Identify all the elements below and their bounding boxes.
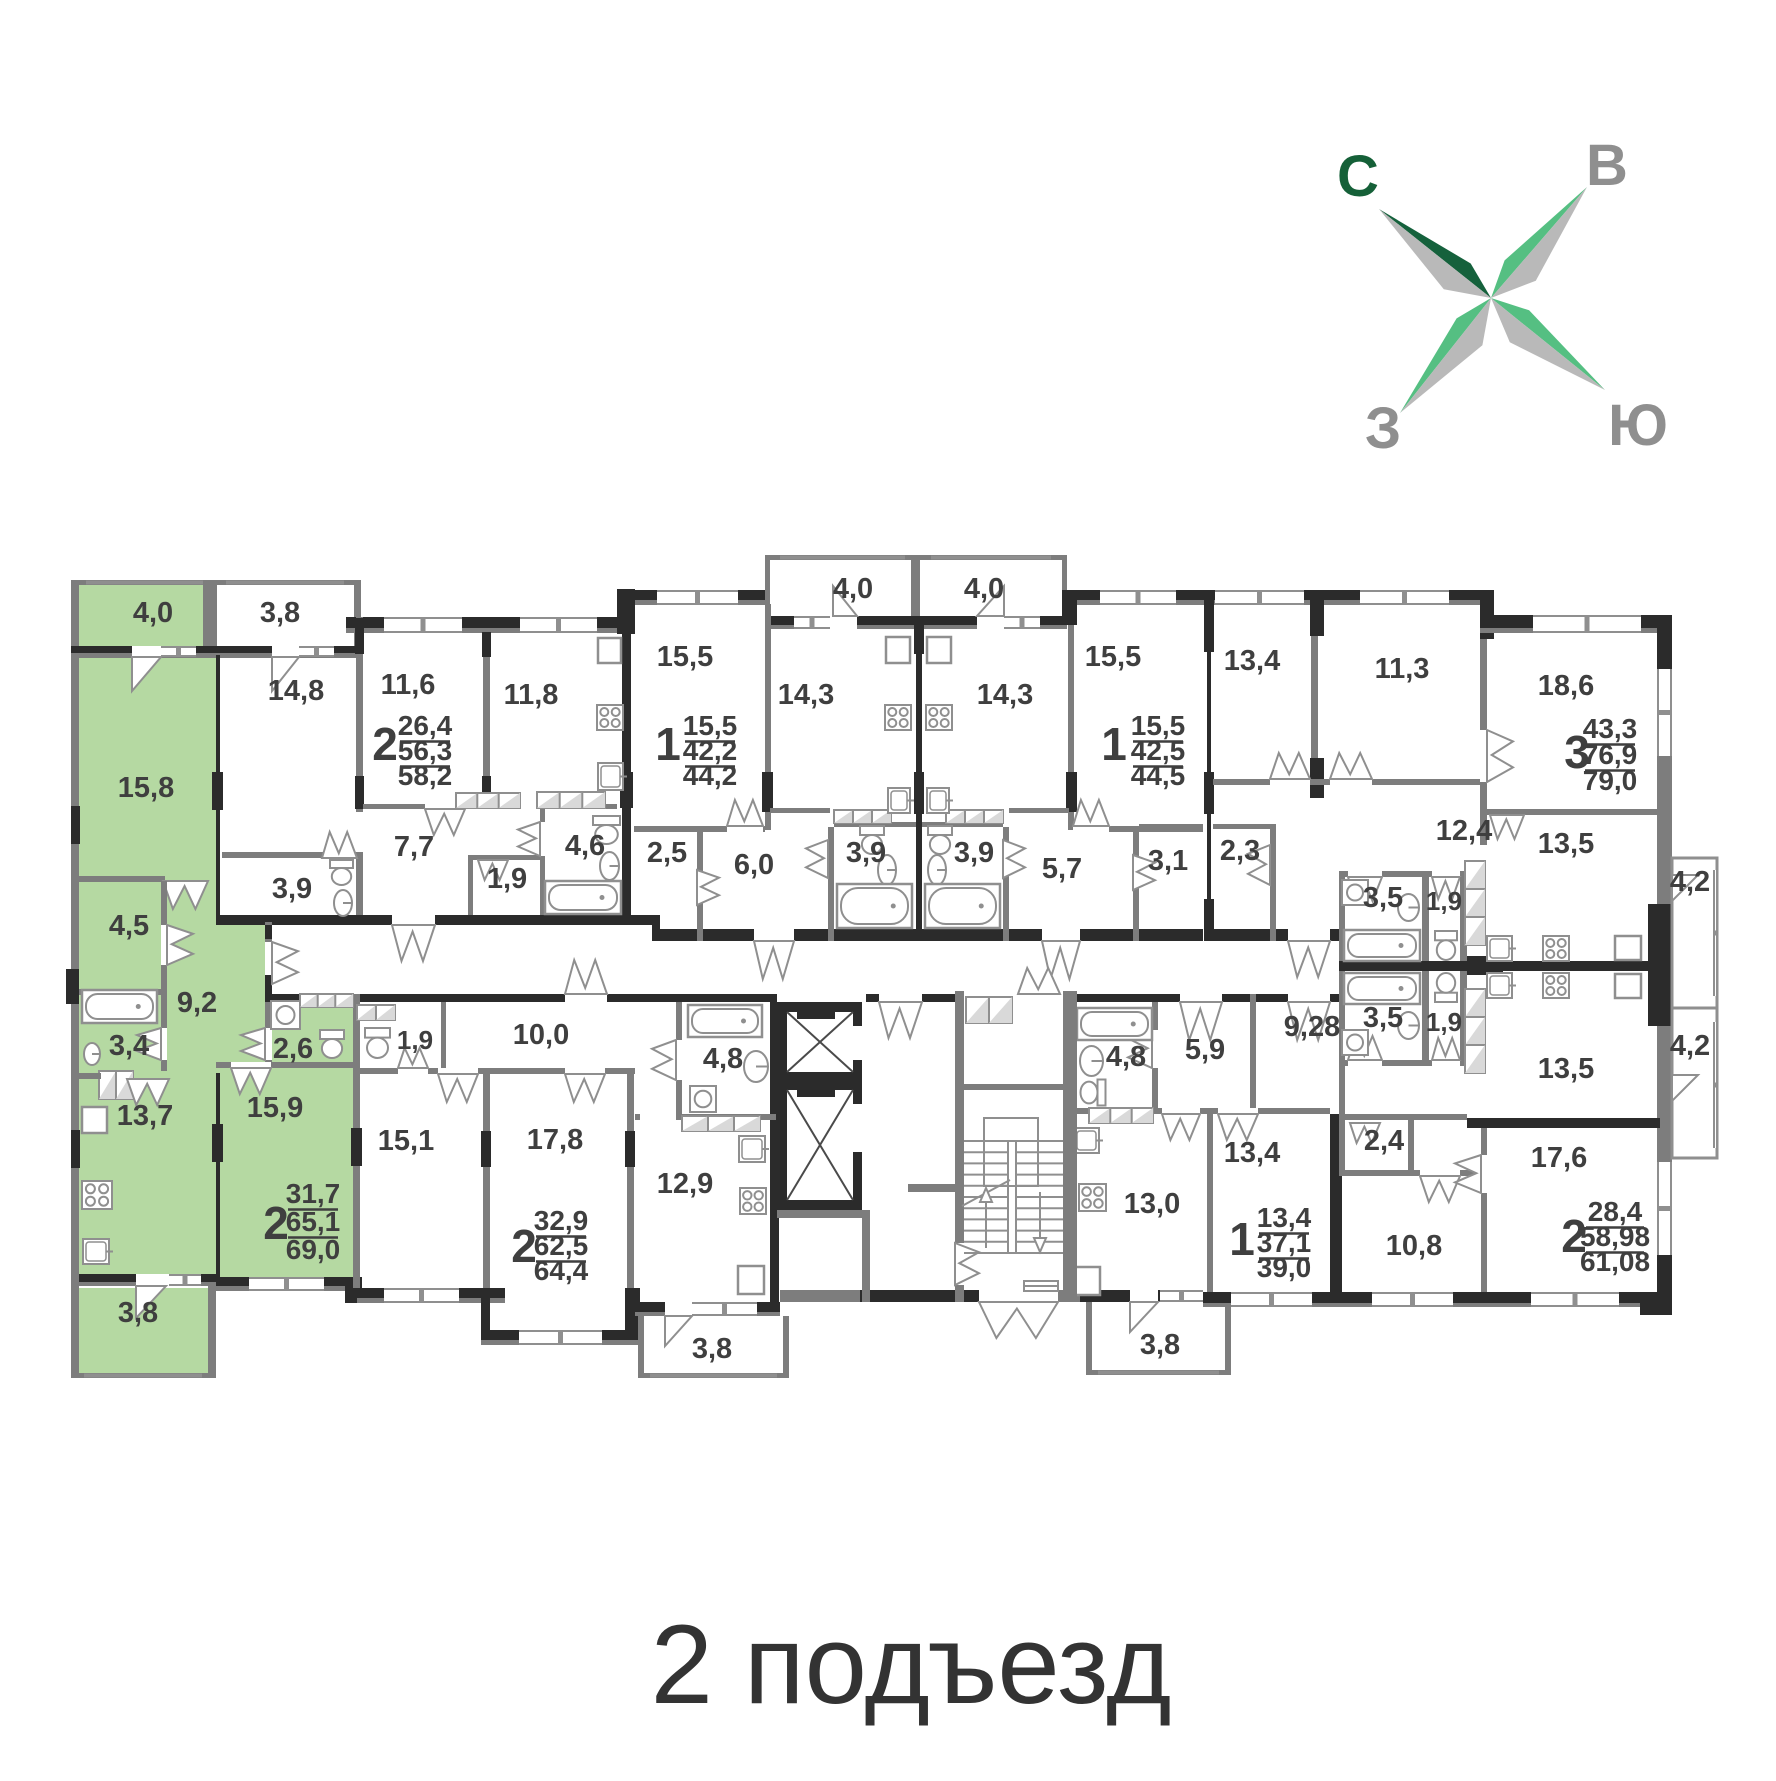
svg-text:13,5: 13,5	[1538, 828, 1594, 860]
svg-text:1: 1	[1101, 718, 1127, 770]
svg-text:58,2: 58,2	[398, 760, 453, 791]
svg-text:5,7: 5,7	[1042, 853, 1082, 885]
svg-text:2: 2	[372, 718, 398, 770]
svg-text:4,2: 4,2	[1670, 1030, 1710, 1062]
svg-text:13,5: 13,5	[1538, 1053, 1594, 1085]
svg-text:2,4: 2,4	[1364, 1125, 1404, 1157]
svg-text:11,6: 11,6	[381, 669, 436, 701]
svg-text:4,6: 4,6	[565, 830, 605, 862]
svg-text:2,6: 2,6	[273, 1033, 313, 1065]
svg-text:11,8: 11,8	[504, 679, 559, 711]
svg-text:4,0: 4,0	[133, 597, 173, 629]
svg-text:15,8: 15,8	[118, 772, 174, 804]
svg-text:2,5: 2,5	[647, 837, 687, 869]
svg-text:13,4: 13,4	[1224, 1137, 1280, 1169]
svg-text:14,8: 14,8	[268, 675, 324, 707]
svg-text:10,8: 10,8	[1386, 1230, 1442, 1262]
svg-text:15,5: 15,5	[657, 641, 713, 673]
svg-text:31,7: 31,7	[286, 1178, 341, 1209]
svg-text:15,1: 15,1	[378, 1125, 434, 1157]
svg-text:1: 1	[655, 718, 681, 770]
svg-text:39,0: 39,0	[1257, 1252, 1312, 1283]
svg-text:1: 1	[1229, 1213, 1255, 1265]
svg-text:12,4: 12,4	[1436, 815, 1492, 847]
svg-text:4,2: 4,2	[1670, 866, 1710, 898]
svg-text:15,5: 15,5	[1085, 641, 1141, 673]
svg-text:Ю: Ю	[1608, 393, 1668, 458]
svg-text:64,4: 64,4	[534, 1255, 589, 1286]
svg-text:1,9: 1,9	[1426, 886, 1462, 916]
svg-text:44,5: 44,5	[1131, 760, 1186, 791]
svg-text:13,0: 13,0	[1124, 1188, 1180, 1220]
svg-text:7,7: 7,7	[394, 831, 434, 863]
svg-text:13,7: 13,7	[117, 1100, 173, 1132]
svg-text:1,9: 1,9	[487, 863, 527, 895]
svg-text:В: В	[1586, 133, 1628, 198]
svg-text:3,8: 3,8	[692, 1333, 732, 1365]
svg-text:4,0: 4,0	[833, 573, 873, 605]
svg-text:44,2: 44,2	[683, 760, 738, 791]
svg-text:3,5: 3,5	[1363, 1002, 1403, 1034]
svg-text:5,9: 5,9	[1185, 1034, 1225, 1066]
svg-text:4,8: 4,8	[1106, 1041, 1146, 1073]
svg-text:З: З	[1365, 396, 1401, 461]
svg-text:1,9: 1,9	[1426, 1007, 1462, 1037]
svg-text:3,1: 3,1	[1148, 845, 1188, 877]
svg-text:С: С	[1337, 144, 1379, 209]
svg-text:2,3: 2,3	[1220, 835, 1260, 867]
svg-text:3,9: 3,9	[846, 837, 886, 869]
svg-text:11,3: 11,3	[1375, 653, 1430, 685]
svg-text:3,9: 3,9	[954, 837, 994, 869]
svg-text:12,9: 12,9	[657, 1168, 713, 1200]
svg-text:18,6: 18,6	[1538, 670, 1594, 702]
svg-text:14,3: 14,3	[778, 679, 834, 711]
svg-text:13,4: 13,4	[1224, 645, 1280, 677]
svg-text:10,0: 10,0	[513, 1019, 569, 1051]
svg-text:14,3: 14,3	[977, 679, 1033, 711]
svg-text:4,8: 4,8	[703, 1043, 743, 1075]
svg-text:3,8: 3,8	[118, 1297, 158, 1329]
svg-text:2 подъезд: 2 подъезд	[651, 1602, 1172, 1727]
svg-text:6,0: 6,0	[734, 849, 774, 881]
svg-text:4,5: 4,5	[109, 910, 149, 942]
svg-text:9,28: 9,28	[1284, 1011, 1340, 1043]
svg-text:3,4: 3,4	[109, 1030, 149, 1062]
svg-text:4,0: 4,0	[964, 573, 1004, 605]
svg-text:17,6: 17,6	[1531, 1142, 1587, 1174]
svg-text:3,5: 3,5	[1363, 882, 1403, 914]
svg-text:17,8: 17,8	[527, 1124, 583, 1156]
svg-text:3,9: 3,9	[272, 873, 312, 905]
svg-text:61,08: 61,08	[1580, 1246, 1650, 1277]
svg-text:1,9: 1,9	[397, 1025, 433, 1055]
svg-text:3,8: 3,8	[1140, 1329, 1180, 1361]
svg-text:15,9: 15,9	[247, 1092, 303, 1124]
svg-text:9,2: 9,2	[177, 987, 217, 1019]
svg-text:3,8: 3,8	[260, 597, 300, 629]
